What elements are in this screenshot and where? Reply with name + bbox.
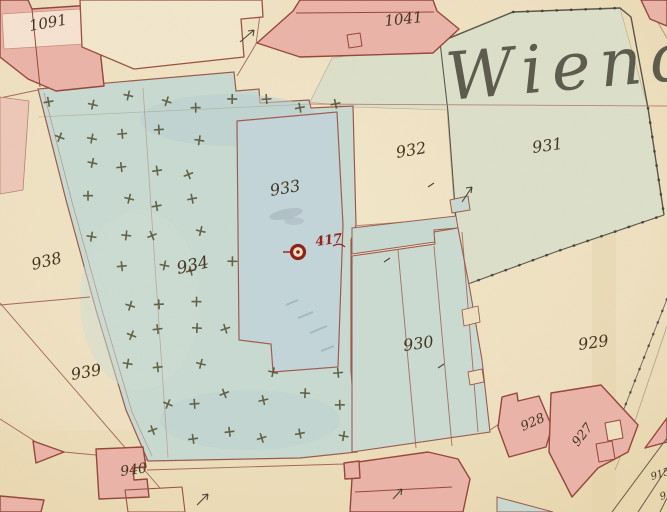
cadastral-map: 1091104193293193393493893994093092992892… [0,0,667,512]
building-bottom-center [350,452,470,512]
map-canvas: 1091104193293193393493893994093092992892… [0,0,667,512]
